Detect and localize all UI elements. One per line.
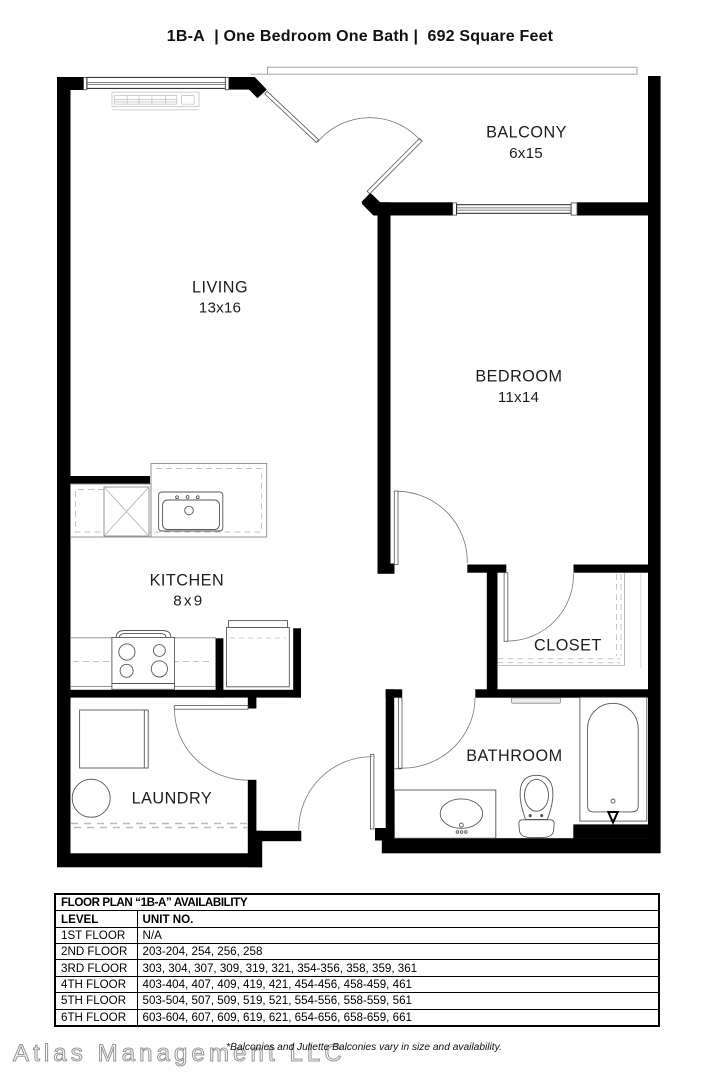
svg-text:LIVING: LIVING xyxy=(192,278,248,296)
svg-text:CLOSET: CLOSET xyxy=(534,637,602,655)
svg-text:13x16: 13x16 xyxy=(199,299,241,316)
svg-text:KITCHEN: KITCHEN xyxy=(150,572,225,590)
svg-text:6x15: 6x15 xyxy=(509,145,543,162)
svg-text:11x14: 11x14 xyxy=(498,389,539,406)
svg-text:8x9: 8x9 xyxy=(173,593,204,610)
svg-text:BALCONY: BALCONY xyxy=(486,124,567,142)
svg-text:LAUNDRY: LAUNDRY xyxy=(132,790,213,808)
svg-text:BEDROOM: BEDROOM xyxy=(475,367,562,385)
svg-text:BATHROOM: BATHROOM xyxy=(466,747,562,765)
